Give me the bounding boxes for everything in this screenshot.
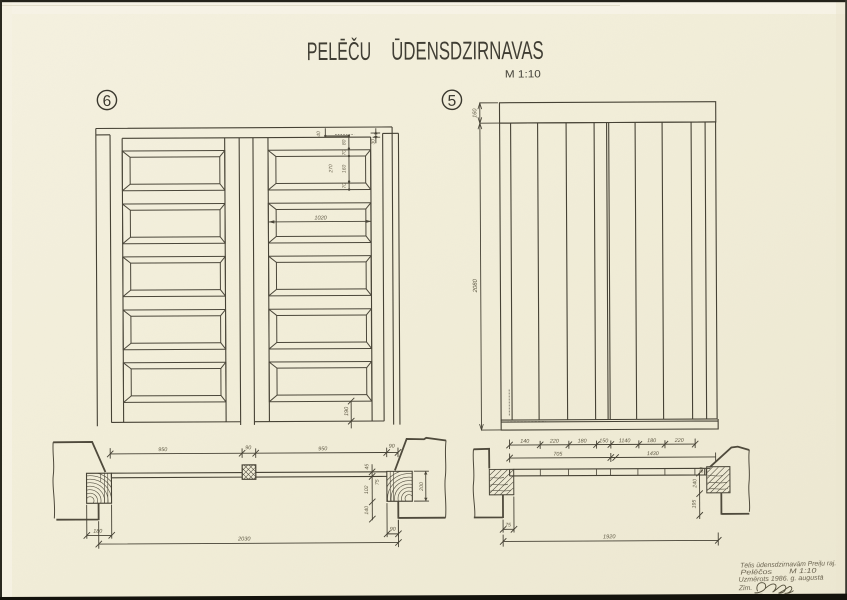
svg-text:90: 90 — [245, 445, 251, 451]
svg-text:6: 6 — [103, 93, 112, 110]
svg-text:200: 200 — [419, 482, 425, 492]
svg-text:PELĒČU: PELĒČU — [307, 37, 372, 66]
svg-text:M 1:10: M 1:10 — [505, 68, 541, 80]
svg-text:150: 150 — [599, 438, 608, 444]
svg-text:80: 80 — [341, 139, 347, 145]
svg-text:90: 90 — [389, 444, 395, 450]
svg-text:1020: 1020 — [314, 215, 327, 221]
svg-text:950: 950 — [318, 446, 327, 452]
svg-text:1920: 1920 — [603, 534, 616, 540]
svg-text:240: 240 — [692, 479, 698, 489]
svg-text:Zīm.: Zīm. — [738, 585, 753, 592]
svg-text:40: 40 — [316, 131, 322, 137]
svg-text:140: 140 — [364, 506, 370, 515]
svg-text:2030: 2030 — [237, 536, 251, 542]
svg-text:180: 180 — [578, 438, 587, 444]
svg-text:30: 30 — [370, 139, 376, 145]
svg-text:1140: 1140 — [619, 438, 631, 444]
svg-text:180: 180 — [93, 529, 102, 535]
svg-text:140: 140 — [520, 439, 529, 445]
svg-text:90: 90 — [390, 527, 396, 533]
svg-text:195: 195 — [692, 500, 698, 509]
svg-text:102: 102 — [364, 485, 370, 494]
svg-text:180: 180 — [647, 438, 656, 444]
svg-text:160: 160 — [472, 108, 478, 118]
svg-text:270: 270 — [328, 164, 334, 174]
svg-text:1430: 1430 — [647, 451, 659, 457]
svg-text:2080: 2080 — [473, 278, 479, 293]
svg-text:705: 705 — [553, 452, 563, 458]
svg-text:ŪDENSDZIRNAVAS: ŪDENSDZIRNAVAS — [391, 37, 544, 66]
svg-text:45: 45 — [364, 464, 370, 470]
svg-text:70: 70 — [342, 150, 348, 156]
svg-text:70: 70 — [342, 183, 348, 189]
svg-text:160: 160 — [342, 164, 348, 173]
svg-text:5: 5 — [448, 93, 457, 110]
svg-text:190: 190 — [344, 406, 350, 416]
svg-text:75: 75 — [505, 523, 511, 529]
svg-text:220: 220 — [549, 439, 559, 445]
svg-text:950: 950 — [158, 447, 167, 453]
svg-text:90: 90 — [699, 467, 705, 473]
svg-text:75: 75 — [375, 479, 381, 485]
svg-text:220: 220 — [674, 438, 684, 444]
